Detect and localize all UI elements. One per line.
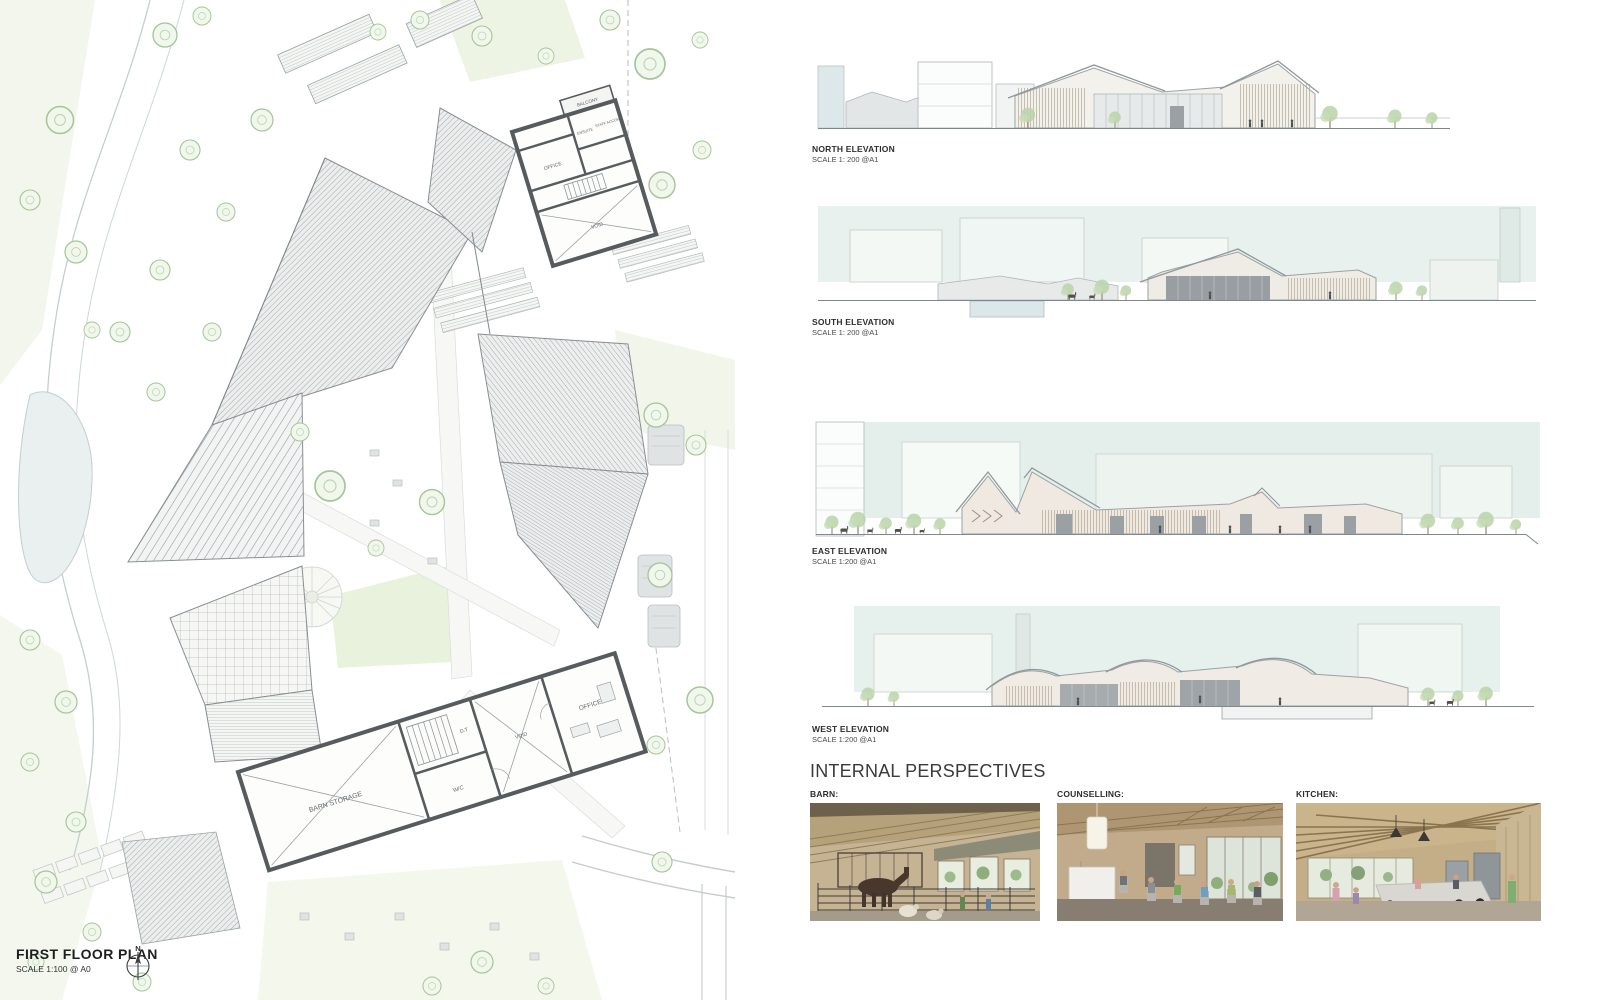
north-elevation-drawing xyxy=(810,6,1545,142)
counselling-label: COUNSELLING: xyxy=(1057,789,1283,799)
perspective-card-counselling: COUNSELLING: xyxy=(1057,789,1283,926)
presentation-sheet: BALCONY OFFICE ENSUITE STAFF ACCOM VOID xyxy=(0,0,1600,1000)
south-elevation-label: SOUTH ELEVATION SCALE 1: 200 @A1 xyxy=(812,317,895,337)
kitchen-perspective-image xyxy=(1296,803,1541,921)
west-elevation-drawing xyxy=(810,594,1545,734)
west-elevation-label: WEST ELEVATION SCALE 1:200 @A1 xyxy=(812,724,889,744)
staff-block-plan: BALCONY OFFICE ENSUITE STAFF ACCOM VOID xyxy=(507,85,656,266)
first-floor-plan-drawing: BALCONY OFFICE ENSUITE STAFF ACCOM VOID xyxy=(0,0,735,1000)
east-elevation-drawing xyxy=(810,414,1545,546)
north-elevation-label: NORTH ELEVATION SCALE 1: 200 @A1 xyxy=(812,144,895,164)
svg-text:N: N xyxy=(135,944,140,953)
perspective-card-barn: BARN: xyxy=(810,789,1040,926)
perspectives-heading: INTERNAL PERSPECTIVES xyxy=(810,761,1046,782)
kitchen-label: KITCHEN: xyxy=(1296,789,1541,799)
north-arrow-icon: N xyxy=(122,942,154,982)
greenhouses xyxy=(278,0,483,110)
barn-label: BARN: xyxy=(810,789,1040,799)
counselling-perspective-image xyxy=(1057,803,1283,921)
east-elevation-label: EAST ELEVATION SCALE 1:200 @A1 xyxy=(812,546,887,566)
perspective-card-kitchen: KITCHEN: xyxy=(1296,789,1541,926)
barn-perspective-image xyxy=(810,803,1040,921)
south-elevation-drawing xyxy=(810,196,1545,326)
